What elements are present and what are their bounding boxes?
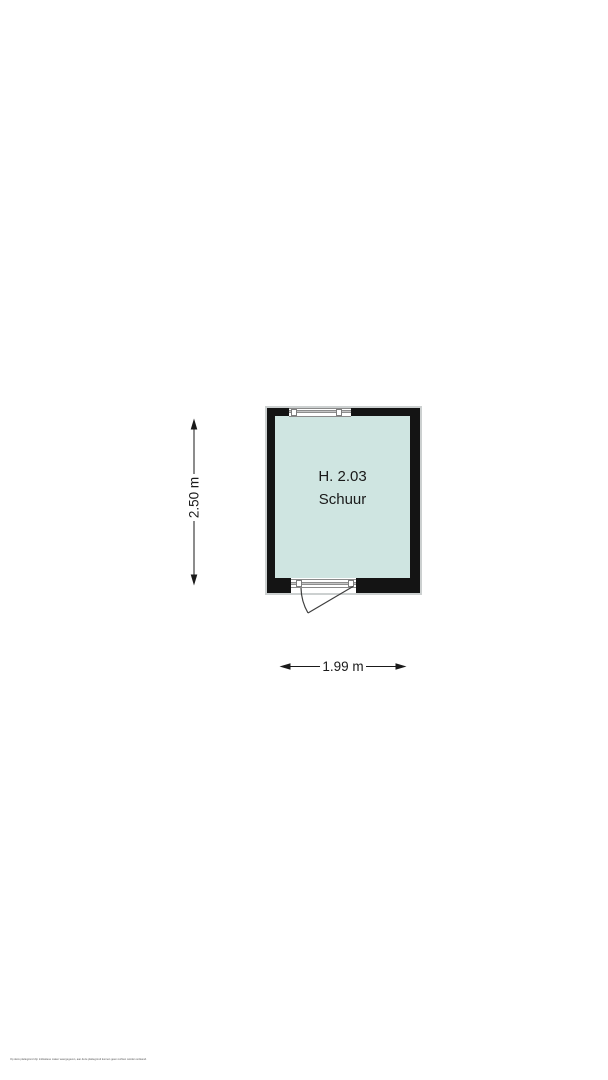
dim-h-arrow-right-icon: [396, 663, 407, 670]
window-stripe: [289, 410, 351, 413]
dimension-width-label: 1.99 m: [322, 659, 363, 674]
dimension-height-label: 2.50 m: [187, 477, 202, 518]
door-swing-icon: [280, 583, 370, 623]
dimension-vertical: 2.50 m: [180, 412, 210, 592]
window-jamb-right: [336, 409, 342, 416]
dim-v-arrow-down-icon: [191, 575, 198, 586]
room-floor: H. 2.03 Schuur: [275, 416, 410, 578]
window-jamb-left: [291, 409, 297, 416]
room-label: H. 2.03 Schuur: [318, 465, 366, 511]
door-leaf-line: [308, 587, 353, 614]
door-arc-line: [301, 588, 308, 613]
room-id-label: H. 2.03: [318, 465, 366, 488]
dim-v-arrow-up-icon: [191, 419, 198, 430]
disclaimer-text: Op deze plattegrond zijn indicatieve mat…: [10, 1059, 147, 1062]
dimension-horizontal: 1.99 m: [272, 653, 414, 679]
floorplan-canvas: H. 2.03 Schuur 2.50 m: [0, 0, 608, 1080]
room-walls: H. 2.03 Schuur: [267, 408, 420, 593]
room-name-label: Schuur: [318, 488, 366, 511]
dim-h-arrow-left-icon: [280, 663, 291, 670]
window-top-icon: [289, 408, 351, 417]
